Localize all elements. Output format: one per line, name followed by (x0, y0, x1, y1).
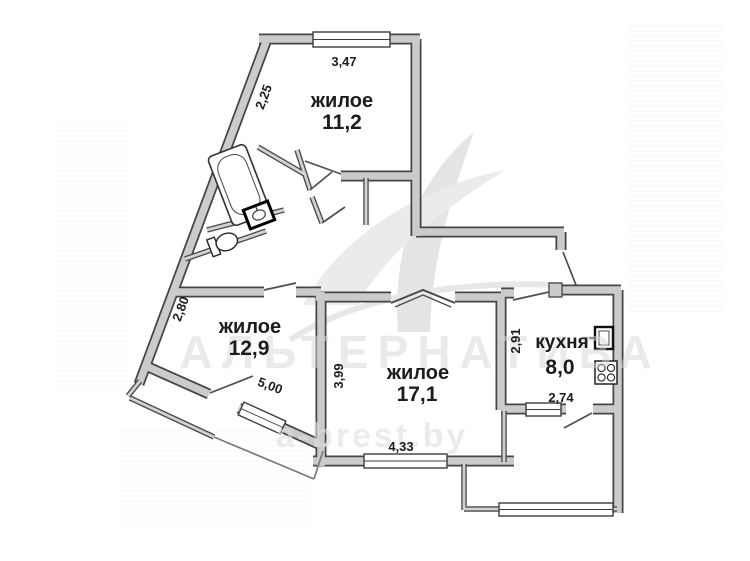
door-room-top (305, 161, 341, 174)
door-room-left (210, 376, 253, 393)
floor-plan-page: АЛЬТЕРНАТИВА a-brest.by жилое 11,2 жилое… (0, 0, 750, 561)
door-kitchen (513, 292, 549, 300)
room-top-area: 11,2 (322, 111, 362, 134)
dim-center-width: 4,33 (388, 439, 413, 454)
door-entry (563, 252, 576, 285)
window-room-top (313, 32, 390, 47)
dim-top-side: 2,25 (252, 82, 275, 111)
dim-center-side: 3,99 (331, 363, 346, 388)
dim-kitchen-side: 2,91 (508, 328, 523, 353)
room-center-area: 17,1 (397, 383, 438, 406)
window-balcony (499, 503, 613, 516)
dim-kitchen-width: 2,74 (548, 390, 574, 405)
dim-top-width: 3,47 (331, 54, 356, 69)
room-top-name: жилое (310, 90, 373, 112)
room-left-area: 12,9 (229, 337, 270, 360)
entry-wall-stub (549, 283, 562, 297)
door-bathroom (310, 172, 332, 190)
floor-plan-svg: АЛЬТЕРНАТИВА a-brest.by жилое 11,2 жилое… (0, 0, 750, 561)
door-wc (322, 207, 345, 223)
door-balcony (564, 413, 592, 428)
window-room-center (364, 454, 447, 468)
toilet-icon (207, 230, 241, 257)
watermark-site: a-brest.by (276, 417, 469, 455)
door-corridor-left (264, 283, 296, 290)
room-left-name: жилое (218, 316, 281, 338)
kitchen-area: 8,0 (545, 356, 574, 379)
kitchen-name: кухня (535, 332, 588, 353)
room-center-name: жилое (386, 362, 449, 384)
